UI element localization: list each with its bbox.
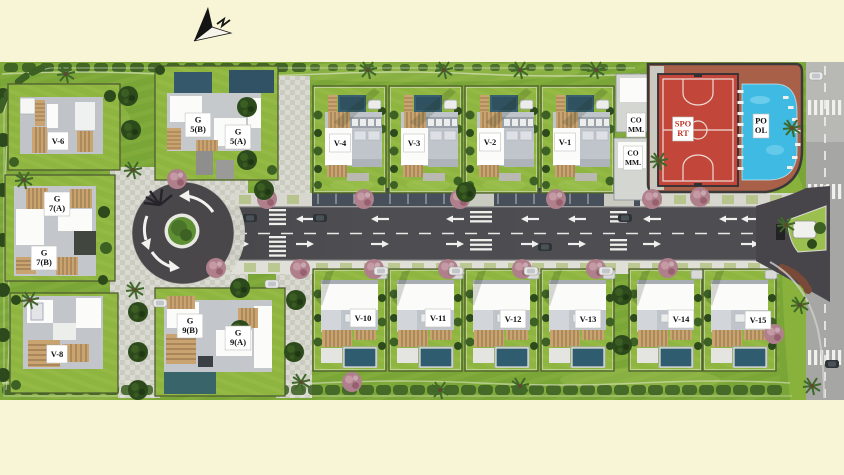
svg-text:SPO: SPO xyxy=(675,119,692,129)
svg-text:CO: CO xyxy=(630,116,641,125)
svg-text:5(B): 5(B) xyxy=(190,124,206,134)
svg-text:MM.: MM. xyxy=(625,158,641,167)
svg-text:V-6: V-6 xyxy=(52,136,65,146)
svg-text:V-4: V-4 xyxy=(334,138,347,148)
svg-text:G: G xyxy=(235,328,242,338)
svg-text:G: G xyxy=(187,316,194,326)
svg-text:G: G xyxy=(41,248,48,258)
svg-text:G: G xyxy=(195,115,202,125)
svg-text:7(B): 7(B) xyxy=(36,257,52,267)
svg-text:7(A): 7(A) xyxy=(49,203,65,213)
svg-text:5(A): 5(A) xyxy=(230,136,246,146)
svg-text:CO: CO xyxy=(627,149,638,158)
svg-text:V-13: V-13 xyxy=(580,314,597,324)
svg-text:V-15: V-15 xyxy=(750,315,767,325)
svg-text:V-12: V-12 xyxy=(505,314,522,324)
svg-text:V-2: V-2 xyxy=(484,137,497,147)
svg-text:OL: OL xyxy=(755,125,768,135)
svg-text:G: G xyxy=(54,194,61,204)
svg-text:RT: RT xyxy=(677,128,689,138)
svg-text:G: G xyxy=(235,127,242,137)
svg-text:V-8: V-8 xyxy=(51,349,64,359)
svg-text:V-11: V-11 xyxy=(430,313,446,323)
svg-text:9(B): 9(B) xyxy=(182,325,198,335)
svg-text:V-3: V-3 xyxy=(408,138,421,148)
svg-text:MM.: MM. xyxy=(628,125,644,134)
svg-text:PO: PO xyxy=(755,116,767,126)
svg-text:9(A): 9(A) xyxy=(230,337,246,347)
svg-text:V-10: V-10 xyxy=(355,313,372,323)
svg-text:V-14: V-14 xyxy=(673,314,691,324)
svg-text:V-1: V-1 xyxy=(559,137,572,147)
